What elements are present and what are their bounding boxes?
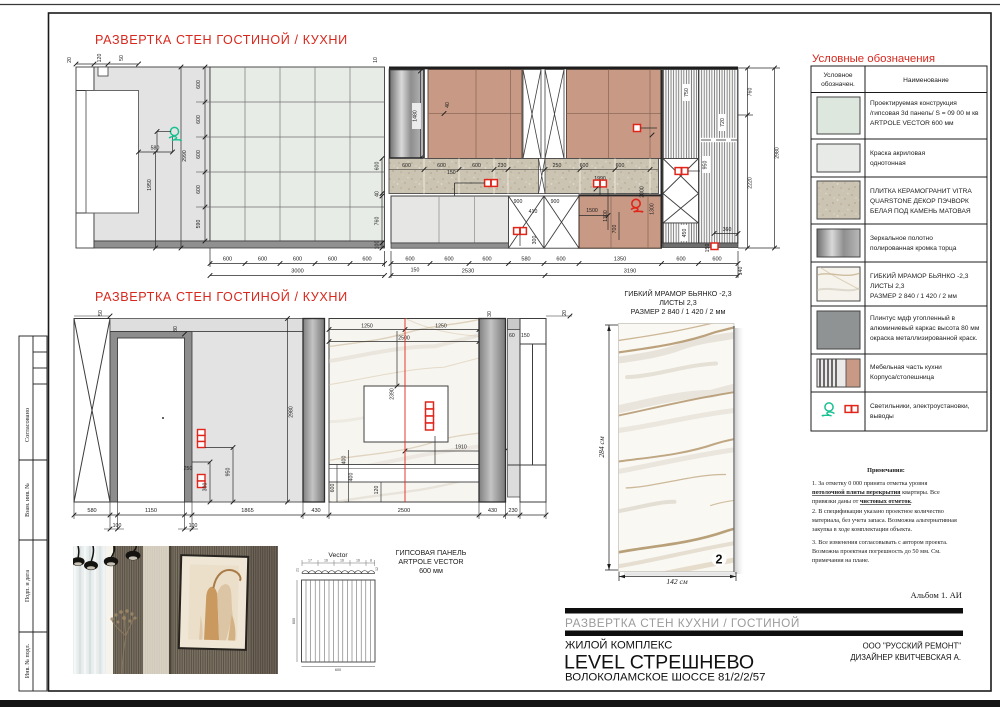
svg-text:Подп. и дата: Подп. и дата (25, 570, 31, 602)
svg-text:окраска металлизированной крас: окраска металлизированной краск. (870, 334, 978, 342)
svg-text:ООО "РУССКИЙ РЕМОНТ": ООО "РУССКИЙ РЕМОНТ" (863, 642, 962, 651)
svg-text:2000: 2000 (640, 186, 646, 198)
svg-text:ГИБКИЙ МРАМОР БЬЯНКО -2,3: ГИБКИЙ МРАМОР БЬЯНКО -2,3 (624, 289, 731, 298)
svg-text:ЛИСТЫ 2,3: ЛИСТЫ 2,3 (870, 283, 905, 290)
svg-text:12: 12 (375, 567, 379, 571)
svg-text:РАЗМЕР 2 840 / 1 420 / 2 мм: РАЗМЕР 2 840 / 1 420 / 2 мм (631, 307, 726, 316)
svg-text:1865: 1865 (241, 508, 253, 514)
svg-text:Возможна проектная погрешнос: Возможна проектная погрешность до 50 мм.… (812, 548, 941, 555)
svg-text:QUARSTONE ДЕКОР ПЭЧВОРК: QUARSTONE ДЕКОР ПЭЧВОРК (870, 198, 969, 205)
svg-text:600: 600 (293, 257, 302, 263)
svg-text:600: 600 (335, 668, 341, 672)
svg-text:600: 600 (196, 115, 202, 124)
svg-text:150: 150 (521, 333, 530, 339)
svg-text:600: 600 (196, 80, 202, 89)
svg-text:1250: 1250 (435, 324, 447, 330)
svg-text:БЕЛАЯ ПОД КАМЕНЬ МАТОВАЯ: БЕЛАЯ ПОД КАМЕНЬ МАТОВАЯ (870, 208, 971, 215)
svg-text:обозначен.: обозначен. (821, 80, 855, 88)
svg-text:50: 50 (98, 310, 104, 316)
svg-text:1300: 1300 (650, 203, 656, 215)
svg-text:Наименование: Наименование (903, 77, 949, 84)
svg-text:600: 600 (292, 618, 296, 624)
svg-text:600: 600 (223, 257, 232, 263)
svg-text:230: 230 (508, 508, 517, 514)
svg-text:2. В спецификации указано: 2. В спецификации указано проектное коли… (812, 508, 944, 515)
svg-text:20: 20 (67, 57, 73, 63)
svg-text:300: 300 (203, 483, 209, 492)
svg-text:600: 600 (362, 257, 371, 263)
svg-text:РАЗВЕРТКА СТЕН ГОСТИНОЙ / КУХН: РАЗВЕРТКА СТЕН ГОСТИНОЙ / КУХНИ (95, 32, 348, 47)
svg-text:600: 600 (196, 150, 202, 159)
svg-text:алюминиевый каркас высота 80 м: алюминиевый каркас высота 80 мм (870, 324, 980, 332)
svg-text:120: 120 (97, 54, 103, 63)
svg-text:3190: 3190 (624, 269, 636, 275)
svg-text:2500: 2500 (398, 508, 410, 514)
svg-text:600: 600 (482, 257, 491, 263)
svg-text:полированная кромка торца: полированная кромка торца (870, 245, 957, 252)
svg-text:142 см: 142 см (666, 577, 687, 586)
svg-text:600: 600 (196, 185, 202, 194)
svg-text:120: 120 (374, 486, 380, 495)
svg-text:720: 720 (720, 118, 726, 127)
svg-text:600: 600 (437, 163, 446, 169)
svg-text:600: 600 (712, 257, 721, 263)
svg-text:Краска акриловая: Краска акриловая (870, 150, 926, 157)
svg-text:700: 700 (612, 225, 618, 234)
svg-text:ARTPOLE VECTOR: ARTPOLE VECTOR (398, 557, 463, 566)
svg-text:60: 60 (509, 333, 515, 339)
svg-text:150: 150 (705, 244, 711, 253)
svg-text:ГИПСОВАЯ ПАНЕЛЬ: ГИПСОВАЯ ПАНЕЛЬ (396, 548, 467, 557)
svg-text:80: 80 (173, 326, 179, 332)
svg-text:760: 760 (748, 88, 754, 97)
svg-text:600: 600 (330, 484, 336, 493)
svg-text:600 мм: 600 мм (419, 566, 443, 575)
svg-text:600: 600 (405, 257, 414, 263)
svg-text:ГИБКИЙ МРАМОР БЬЯНКО -2,3: ГИБКИЙ МРАМОР БЬЯНКО -2,3 (870, 271, 969, 280)
svg-text:2220: 2220 (748, 177, 754, 189)
svg-text:Альбом 1. АИ: Альбом 1. АИ (910, 590, 962, 600)
svg-text:17: 17 (308, 559, 312, 563)
svg-text:Зеркальное полотно: Зеркальное полотно (870, 235, 933, 242)
svg-text:1480: 1480 (413, 110, 419, 122)
svg-text:21: 21 (296, 568, 300, 572)
svg-text:выводы: выводы (870, 413, 894, 420)
svg-text:600: 600 (402, 163, 411, 169)
svg-text:РАЗВЕРТКА СТЕН КУХНИ / ГОСТИНО: РАЗВЕРТКА СТЕН КУХНИ / ГОСТИНОЙ (565, 616, 800, 630)
svg-text:600: 600 (444, 257, 453, 263)
svg-text:30: 30 (487, 311, 493, 317)
svg-text:Мебельная часть кухни: Мебельная часть кухни (870, 363, 942, 371)
svg-text:760: 760 (375, 217, 381, 226)
svg-text:2390: 2390 (390, 388, 396, 400)
svg-text:LEVEL СТРЕШНЕВО: LEVEL СТРЕШНЕВО (564, 652, 754, 674)
svg-text:1250: 1250 (361, 324, 373, 330)
svg-text:250: 250 (553, 163, 562, 169)
svg-text:Светильники, электроустановки,: Светильники, электроустановки, (870, 403, 970, 410)
svg-text:Условное: Условное (823, 72, 852, 79)
svg-text:20: 20 (562, 310, 568, 316)
svg-text:Корпуса/столешница: Корпуса/столешница (870, 374, 934, 381)
svg-text:750: 750 (684, 88, 690, 97)
svg-text:потолочной плиты перекрытия: потолочной плиты перекрытия квартиры. Вс… (812, 489, 940, 496)
svg-text:Взам. инв. №: Взам. инв. № (25, 483, 31, 517)
svg-text:16: 16 (324, 559, 328, 563)
svg-text:2: 2 (716, 553, 723, 567)
svg-text:100: 100 (113, 523, 122, 529)
svg-text:950: 950 (703, 161, 709, 170)
svg-text:1150: 1150 (145, 508, 157, 514)
svg-text:900: 900 (514, 199, 523, 205)
svg-text:1910: 1910 (455, 445, 467, 451)
svg-text:430: 430 (488, 508, 497, 514)
svg-text:Инв. № подл.: Инв. № подл. (25, 643, 31, 678)
svg-text:закупка в ходе комплектации об: закупка в ходе комплектации объекта. (812, 526, 913, 533)
svg-text:430: 430 (311, 508, 320, 514)
svg-text:580: 580 (521, 257, 530, 263)
svg-text:400: 400 (349, 473, 355, 482)
svg-text:8: 8 (370, 559, 372, 563)
svg-text:400: 400 (342, 456, 348, 465)
svg-text:1. За отметку 0 000 приня: 1. За отметку 0 000 принята отметка уров… (812, 480, 927, 487)
svg-text:50: 50 (119, 55, 125, 61)
svg-text:10: 10 (373, 57, 379, 63)
svg-text:950: 950 (226, 468, 232, 477)
svg-text:ARTPOLE VECTOR 600 мм: ARTPOLE VECTOR 600 мм (870, 120, 954, 127)
svg-text:2990: 2990 (182, 150, 188, 162)
svg-text:Согласовано: Согласовано (24, 408, 31, 442)
svg-text:2500: 2500 (398, 336, 410, 342)
svg-text:РАЗМЕР 2 840 / 1 420 / 2 мм: РАЗМЕР 2 840 / 1 420 / 2 мм (870, 293, 957, 300)
svg-text:580: 580 (87, 508, 96, 514)
svg-text:16: 16 (356, 559, 360, 563)
svg-text:600: 600 (328, 257, 337, 263)
svg-text:Примечания:: Примечания: (867, 467, 905, 474)
svg-text:600: 600 (258, 257, 267, 263)
svg-text:2530: 2530 (462, 269, 474, 275)
svg-text:150: 150 (411, 268, 420, 274)
svg-text:/гипсовая 3d панель/ S = 09 00: /гипсовая 3d панель/ S = 09 00 м кв (870, 110, 979, 117)
svg-text:16: 16 (340, 559, 344, 563)
svg-text:ВОЛОКОЛАМСКОЕ ШОССЕ 81/2/2/57: ВОЛОКОЛАМСКОЕ ШОССЕ 81/2/2/57 (565, 672, 765, 684)
svg-text:однотонная: однотонная (870, 160, 906, 167)
svg-text:410: 410 (529, 209, 538, 215)
svg-text:примечания на плане.: примечания на плане. (812, 557, 870, 564)
svg-text:900: 900 (551, 199, 560, 205)
svg-text:600: 600 (472, 163, 481, 169)
svg-text:1350: 1350 (614, 257, 626, 263)
svg-text:600: 600 (556, 257, 565, 263)
svg-text:600: 600 (375, 162, 381, 171)
svg-text:ДИЗАЙНЕР КВИТЧЕВСКАЯ А.: ДИЗАЙНЕР КВИТЧЕВСКАЯ А. (850, 653, 961, 662)
svg-text:300: 300 (532, 236, 538, 245)
svg-text:3. Все изменения согласовыват: 3. Все изменения согласовывать с автором… (812, 539, 948, 546)
svg-text:2980: 2980 (289, 406, 295, 418)
svg-text:284 см: 284 см (597, 436, 606, 457)
svg-text:450: 450 (682, 229, 688, 238)
svg-text:580: 580 (151, 146, 160, 152)
svg-text:1500: 1500 (586, 208, 598, 214)
svg-text:ЖИЛОЙ КОМПЛЕКС: ЖИЛОЙ КОМПЛЕКС (565, 639, 672, 652)
svg-text:3000: 3000 (291, 269, 303, 275)
svg-text:ЛИСТЫ 2,3: ЛИСТЫ 2,3 (659, 298, 697, 307)
svg-text:материала, без учета запаса. В: материала, без учета запаса. Возможна ал… (812, 517, 957, 524)
svg-text:привязки даны от чистовых отме: привязки даны от чистовых отметок. (812, 498, 913, 505)
svg-text:Плинтус мдф утопленный в: Плинтус мдф утопленный в (870, 314, 956, 322)
svg-text:250: 250 (184, 466, 193, 472)
svg-text:ПЛИТКА КЕРАМОГРАНИТ VITRA: ПЛИТКА КЕРАМОГРАНИТ VITRA (870, 188, 972, 195)
svg-text:590: 590 (196, 220, 202, 229)
svg-text:2980: 2980 (775, 147, 781, 159)
svg-text:Vector: Vector (328, 552, 348, 559)
svg-text:100: 100 (375, 241, 381, 250)
svg-text:150: 150 (447, 170, 456, 176)
svg-text:РАЗВЕРТКА СТЕН ГОСТИНОЙ / КУХН: РАЗВЕРТКА СТЕН ГОСТИНОЙ / КУХНИ (95, 289, 348, 304)
svg-text:Условные обозначения: Условные обозначения (812, 53, 935, 65)
svg-text:40: 40 (445, 102, 451, 108)
svg-text:140: 140 (738, 267, 744, 276)
svg-text:40: 40 (375, 191, 381, 197)
svg-text:600: 600 (676, 257, 685, 263)
svg-text:360: 360 (723, 227, 732, 233)
svg-text:230: 230 (498, 163, 507, 169)
svg-text:1950: 1950 (147, 179, 153, 191)
svg-text:Проектируемая конструкция: Проектируемая конструкция (870, 100, 957, 107)
